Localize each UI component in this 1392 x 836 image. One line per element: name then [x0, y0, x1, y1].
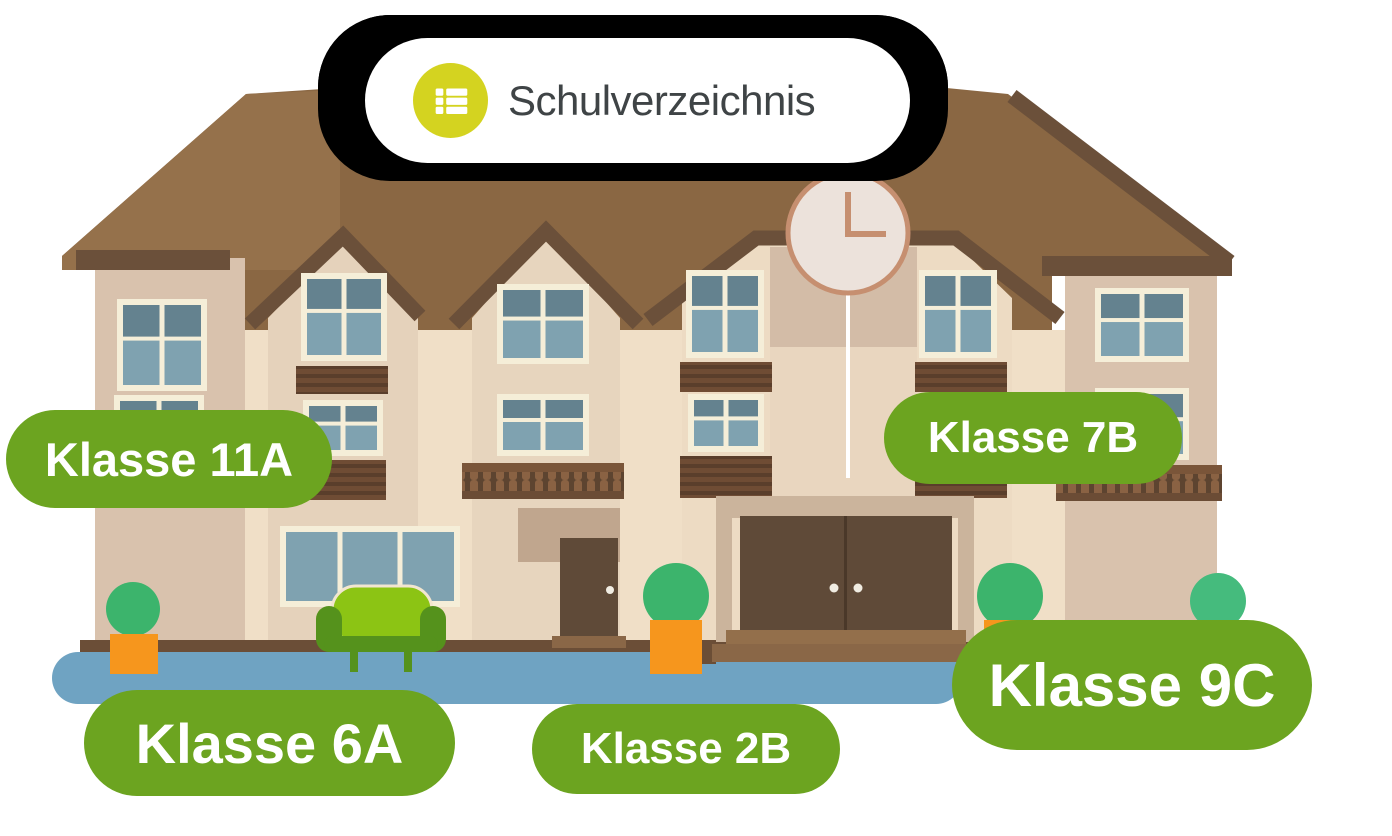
window: [117, 299, 207, 391]
window: [688, 394, 764, 452]
door-lintel: [716, 496, 974, 518]
class-label-11a[interactable]: Klasse 11A: [6, 410, 332, 508]
bush: [643, 563, 709, 629]
balcony-left: [462, 463, 624, 499]
bush: [106, 582, 160, 636]
class-label-2b[interactable]: Klasse 2B: [532, 704, 840, 794]
plant-pot: [110, 634, 158, 674]
window: [301, 273, 387, 361]
plant-pot: [650, 620, 702, 674]
window: [497, 394, 589, 456]
window: [919, 270, 997, 358]
list-icon: [413, 63, 488, 138]
schulverzeichnis-screen: Schulverzeichnis Klasse 11A Klasse 7B Kl…: [0, 0, 1392, 836]
class-label-7b[interactable]: Klasse 7B: [884, 392, 1182, 484]
class-label-9c[interactable]: Klasse 9C: [952, 620, 1312, 750]
left-eave: [76, 250, 230, 270]
class-label-6a[interactable]: Klasse 6A: [84, 690, 455, 796]
window: [497, 284, 589, 364]
window: [686, 270, 764, 358]
right-eave: [1042, 256, 1232, 276]
schulverzeichnis-badge: Schulverzeichnis: [365, 38, 910, 163]
page-title: Schulverzeichnis: [508, 77, 815, 125]
window: [1095, 288, 1189, 362]
main-entrance: [716, 496, 974, 642]
